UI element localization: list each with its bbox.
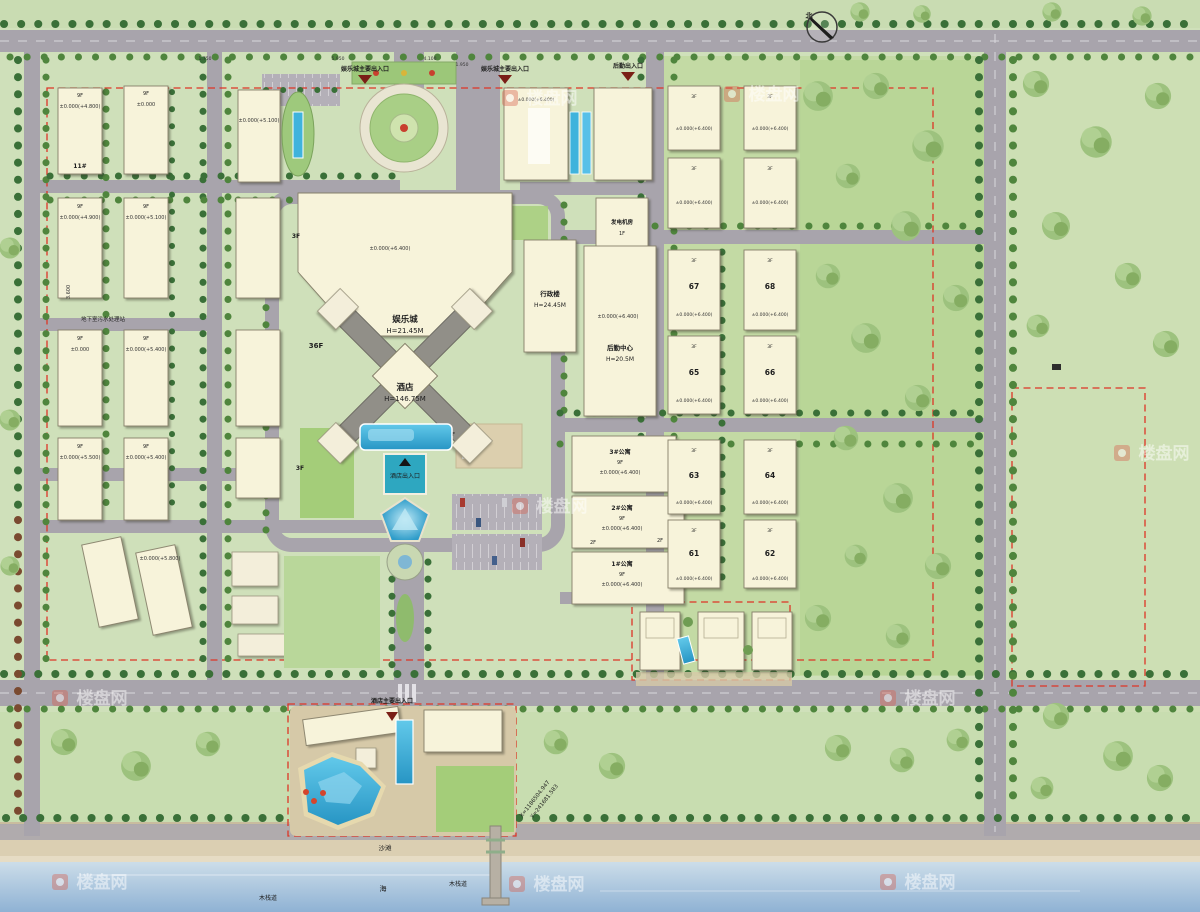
floors-label: 9F [143,444,149,450]
small-marker [1052,364,1061,370]
water-feature [570,112,579,174]
elevation-label: ±0.000(+6.400) [598,314,639,320]
boardwalk-label: 木栈道 [259,894,277,902]
floors-label: 1F [619,231,625,237]
elevation-label: ±0.000(+5.500) [60,455,101,461]
elevation-label: ±0.000(+5.100) [126,215,167,221]
floors-label: 3F [767,344,773,350]
garden-pool [293,112,303,158]
elevation-label: ±0.000(+6.400) [752,200,789,206]
logistics-center-label: 后勤中心 [607,343,634,352]
avenue-median [396,594,414,642]
beach-club-lawn [436,766,514,832]
water-feature [582,112,591,174]
watermark [724,84,800,105]
admin-building-label: 行政楼 [539,289,560,298]
elevation-label: ±0.000(+5.100) [239,118,280,124]
north-arrow: 北 [806,11,838,42]
dim-label: 3.600 [66,285,72,299]
floors-label: 9F [619,516,625,522]
apartment-label: 1#公寓 [611,560,632,568]
floors-label: 3F [292,233,300,240]
floors-label: 9F [619,572,625,578]
floors-label: 36F [309,342,324,350]
floors-label: 9F [77,444,83,450]
floors-label: 3F [691,528,697,534]
floors-label: 3F [296,465,304,472]
elevation-label: ±0.000 [137,102,156,108]
watermark [509,874,585,895]
floors-label: 9F [77,93,83,99]
beach-club: 酒店主要出入口 [290,697,516,836]
elevation-label: ±0.000(+6.400) [752,500,789,506]
admin-building-height: H=24.45M [534,302,566,309]
parking-lot [452,494,542,530]
hotel-entrance-label: 酒店出入口 [390,472,420,480]
elevation-label: ±0.000(+6.400) [600,470,641,476]
hotel-height: H=146.75M [384,395,426,403]
elevation-label: ±0.000(+4.900) [60,215,101,221]
elevation-label: ±0.000(+6.400) [676,500,713,506]
sea-label: 海 [380,884,387,893]
elevation-label: ±0.000(+6.400) [602,526,643,532]
floors-label: 9F [143,91,149,97]
dim-label: 4.100 [424,56,437,62]
floors-label: 2F [590,540,596,546]
floors-label: 9F [77,336,83,342]
elevation-label: ±0.000(+6.400) [752,398,789,404]
elevation-label: ±0.000(+6.400) [676,312,713,318]
dim-label: 5.950 [332,56,345,62]
floors-label: 3F [691,344,697,350]
elevation-label: ±0.000(+6.400) [676,126,713,132]
block-number: 64 [765,471,775,480]
block-number: 67 [689,282,699,291]
watermark [52,872,128,893]
hotel-label: 酒店 [396,382,414,393]
sea [0,862,1200,912]
logistics-center-height: H=20.5M [606,356,634,363]
floors-label: 9F [143,204,149,210]
elevation-label: ±0.000(+5.400) [126,347,167,353]
floors-label: 9F [617,460,623,466]
floors-label: 3F [767,528,773,534]
floors-label: 9F [77,204,83,210]
elevation-label: ±0.000(+5.400) [126,455,167,461]
elevation-label: ±0.000(+5.800) [140,556,181,562]
entrance-label: 后勤出入口 [613,62,643,70]
apartment-label: 3#公寓 [609,448,630,456]
elevation-label: ±0.000(+4.800) [60,104,101,110]
block-number: 62 [765,549,775,558]
north-label: 北 [806,11,813,20]
floors-label: 3F [691,166,697,172]
elevation-label: ±0.000(+6.400) [752,126,789,132]
elevation-label: ±0.000(+6.400) [752,312,789,318]
floors-label: 2F [657,538,663,544]
pier [490,826,501,902]
beach-label: 沙滩 [379,843,393,852]
lap-pool [396,720,413,784]
entertainment-city-label: 娱乐城 [392,314,418,325]
floors-label: 3F [767,258,773,264]
block-number: 63 [689,471,699,480]
entertainment-city-height: H=21.45M [386,327,423,335]
entrance-label: 娱乐城主要出入口 [481,65,529,73]
elevation-label: ±0.000(+6.400) [676,200,713,206]
watermark [880,872,956,893]
watermark [1114,443,1190,464]
generator-room-label: 发电机房 [610,218,634,226]
beach-entrance-label: 酒店主要出入口 [371,697,413,705]
entrance-label: 娱乐城主要出入口 [341,65,389,73]
elevation-label: ±0.000 [71,347,90,353]
elevation-label: ±0.000(+6.400) [602,582,643,588]
watermark [52,688,128,709]
floors-label: 9F [143,336,149,342]
apartment-label: 2#公寓 [611,504,632,512]
site-master-plan: 楼盘网 [0,0,1200,912]
block-number: 66 [765,368,775,377]
elevation-label: ±0.000(+6.400) [752,576,789,582]
elevation-label: ±0.000(+6.400) [370,246,411,252]
elevation-label: ±0.000(+6.400) [676,576,713,582]
block-number: 61 [689,549,699,558]
dim-label: 1.950 [456,62,469,68]
boardwalk-label: 木栈道 [449,880,467,888]
sewage-station-label: 地下室污水处理站 [81,315,126,323]
building-11-label: 11# [73,163,86,170]
floors-label: 3F [691,94,697,100]
floors-label: 3F [767,166,773,172]
watermark [512,496,588,517]
block-number: 68 [765,282,775,291]
watermark [502,88,578,109]
block-number: 65 [689,368,699,377]
elevation-label: ±0.000(+6.400) [676,398,713,404]
dim-label: 1.750 [199,56,212,62]
floors-label: 3F [691,258,697,264]
show-home-row [636,612,792,686]
watermark [880,688,956,709]
floors-label: 3F [691,448,697,454]
floors-label: 3F [767,448,773,454]
